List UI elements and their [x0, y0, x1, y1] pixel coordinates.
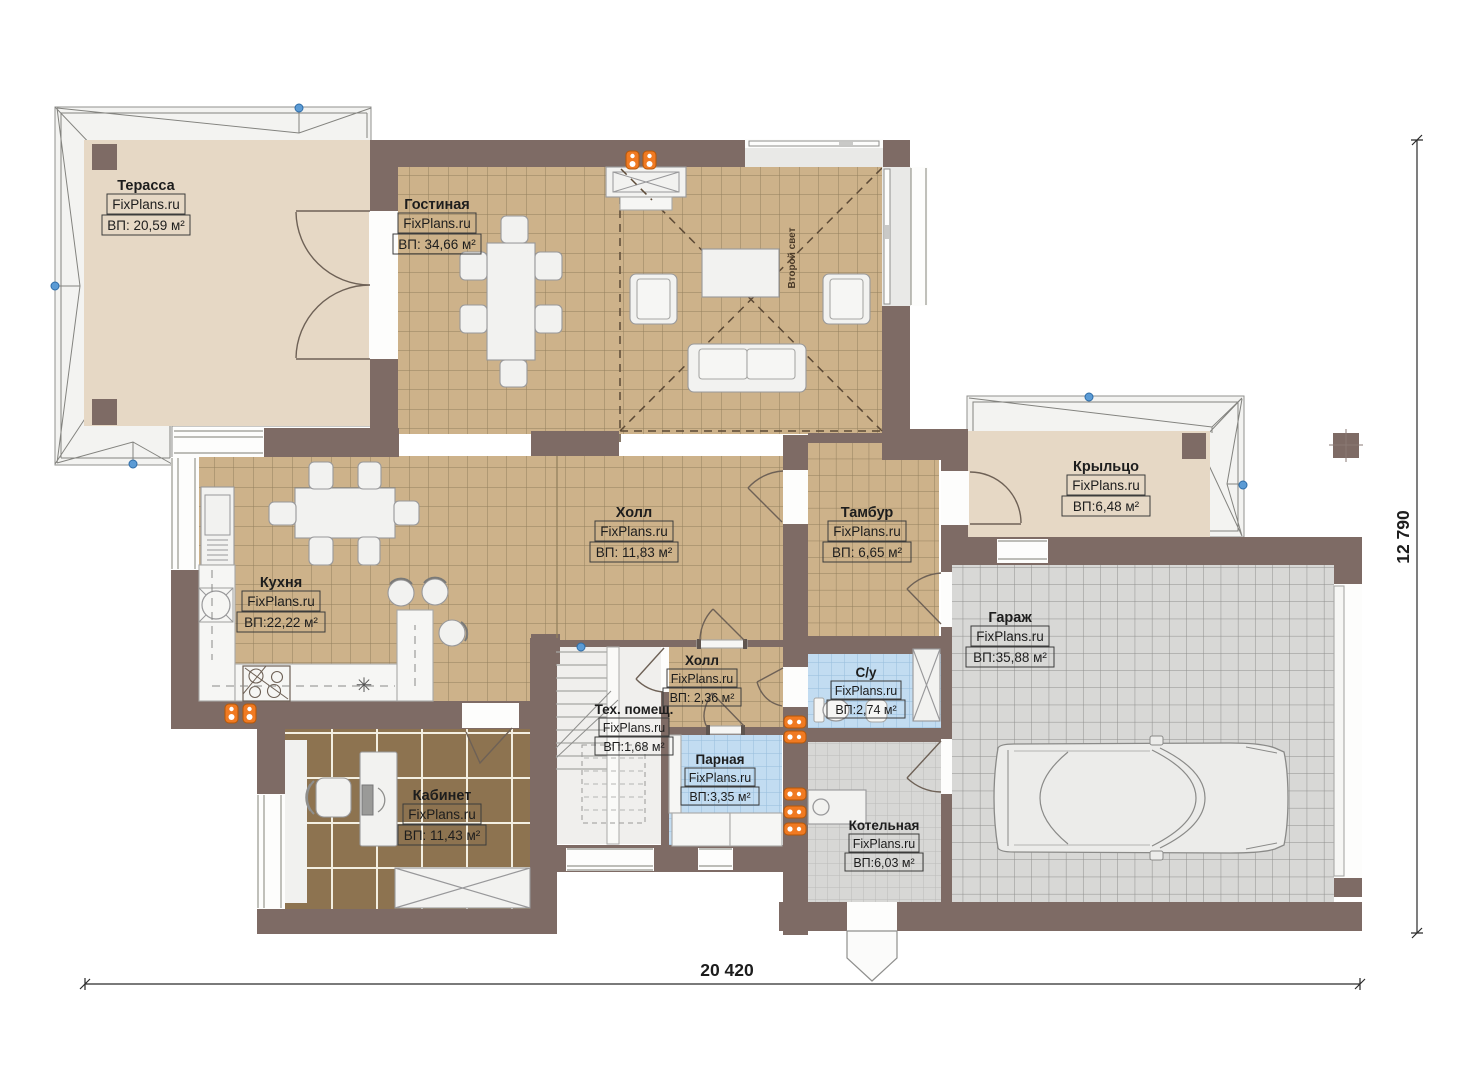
svg-text:ВП:6,03 м²: ВП:6,03 м²: [853, 856, 914, 870]
svg-text:Второй свет: Второй свет: [787, 227, 798, 288]
svg-text:12 790: 12 790: [1393, 510, 1413, 564]
svg-text:Холл: Холл: [685, 653, 719, 668]
svg-text:ВП: 6,65 м²: ВП: 6,65 м²: [832, 545, 903, 560]
svg-text:Крыльцо: Крыльцо: [1073, 459, 1139, 475]
svg-text:FixPlans.ru: FixPlans.ru: [835, 684, 898, 698]
svg-text:FixPlans.ru: FixPlans.ru: [603, 721, 666, 735]
svg-text:ВП:22,22 м²: ВП:22,22 м²: [244, 615, 318, 630]
svg-text:FixPlans.ru: FixPlans.ru: [976, 629, 1044, 644]
svg-text:FixPlans.ru: FixPlans.ru: [1072, 478, 1140, 493]
svg-text:Гостиная: Гостиная: [404, 197, 470, 213]
svg-text:С/у: С/у: [855, 665, 877, 680]
svg-text:Терасса: Терасса: [117, 178, 175, 194]
svg-text:FixPlans.ru: FixPlans.ru: [671, 672, 734, 686]
svg-text:FixPlans.ru: FixPlans.ru: [833, 524, 901, 539]
svg-text:Тех. помещ.: Тех. помещ.: [595, 702, 674, 717]
svg-text:FixPlans.ru: FixPlans.ru: [600, 524, 668, 539]
svg-text:FixPlans.ru: FixPlans.ru: [689, 771, 752, 785]
svg-text:Кабинет: Кабинет: [413, 788, 472, 804]
svg-text:Холл: Холл: [616, 505, 652, 521]
svg-text:ВП: 2,36 м²: ВП: 2,36 м²: [670, 691, 735, 705]
svg-text:FixPlans.ru: FixPlans.ru: [408, 807, 476, 822]
svg-text:Котельная: Котельная: [849, 818, 920, 833]
svg-text:ВП:3,35 м²: ВП:3,35 м²: [689, 790, 750, 804]
svg-text:Тамбур: Тамбур: [841, 505, 894, 521]
svg-text:FixPlans.ru: FixPlans.ru: [853, 837, 916, 851]
svg-text:FixPlans.ru: FixPlans.ru: [403, 216, 471, 231]
svg-text:Парная: Парная: [696, 752, 745, 767]
svg-text:✳: ✳: [356, 675, 373, 697]
svg-text:FixPlans.ru: FixPlans.ru: [247, 594, 315, 609]
svg-text:ВП:1,68 м²: ВП:1,68 м²: [603, 740, 664, 754]
svg-text:ВП: 11,43 м²: ВП: 11,43 м²: [404, 828, 481, 843]
svg-text:ВП: 34,66 м²: ВП: 34,66 м²: [398, 237, 476, 252]
svg-text:ВП: 11,83 м²: ВП: 11,83 м²: [596, 545, 673, 560]
svg-text:Гараж: Гараж: [988, 610, 1032, 626]
svg-text:20 420: 20 420: [700, 960, 754, 980]
svg-text:ВП:2,74 м²: ВП:2,74 м²: [835, 703, 896, 717]
svg-text:ВП:6,48 м²: ВП:6,48 м²: [1073, 499, 1140, 514]
svg-text:Кухня: Кухня: [260, 575, 302, 591]
svg-text:ВП:35,88 м²: ВП:35,88 м²: [973, 650, 1047, 665]
svg-text:FixPlans.ru: FixPlans.ru: [112, 197, 180, 212]
svg-text:ВП: 20,59 м²: ВП: 20,59 м²: [107, 218, 185, 233]
